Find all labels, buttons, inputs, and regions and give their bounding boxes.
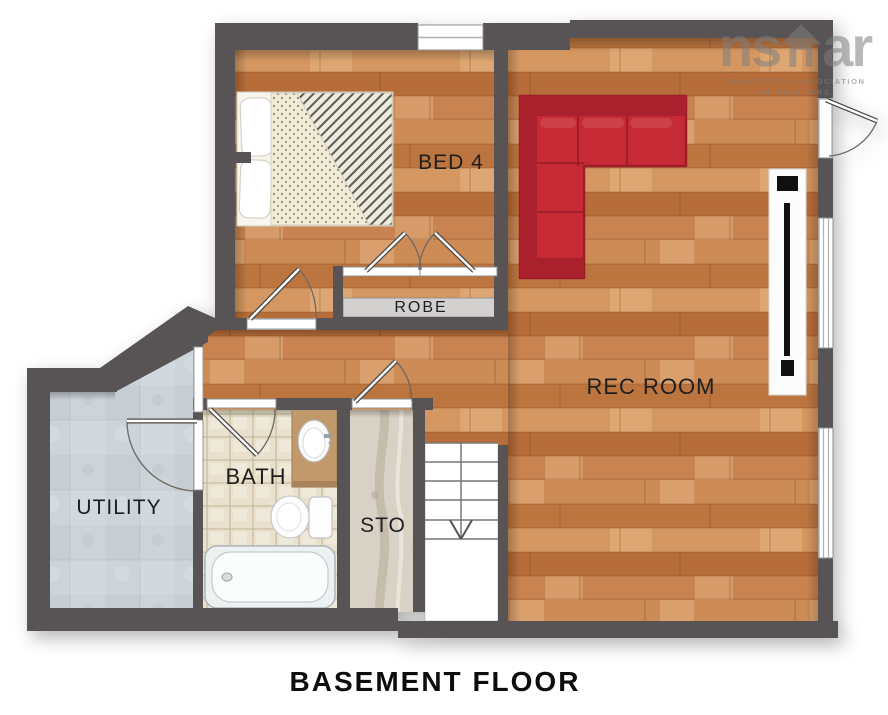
bath-vanity xyxy=(292,407,337,487)
rec-room-window-upper xyxy=(819,218,833,348)
rec-room-window-lower xyxy=(819,428,833,558)
bed xyxy=(237,92,393,226)
av-equipment xyxy=(781,360,794,376)
exterior-door xyxy=(826,100,877,156)
page-title: BASEMENT FLOOR xyxy=(0,666,870,698)
utility-window xyxy=(194,347,203,412)
pillow xyxy=(240,97,273,156)
room-label-sto: STO xyxy=(360,514,406,538)
floorplan-page: BED 4 REC ROOM UTILITY BATH STO ROBE BAS… xyxy=(0,0,888,715)
room-label-bath: BATH xyxy=(225,464,286,490)
tv-unit xyxy=(769,169,806,395)
room-label-robe: ROBE xyxy=(394,299,447,317)
room-label-utility: UTILITY xyxy=(76,496,161,520)
sto-floor xyxy=(350,410,413,612)
pillow xyxy=(239,159,272,218)
bed4-window xyxy=(418,25,483,50)
floorplan-drawing xyxy=(0,0,888,715)
av-equipment xyxy=(777,176,798,191)
toilet xyxy=(271,496,332,538)
tub-drain xyxy=(222,573,232,581)
robe-floor xyxy=(343,276,497,298)
faucet xyxy=(324,434,332,438)
tv-screen xyxy=(784,203,790,356)
bathtub xyxy=(205,546,335,608)
room-label-rec-room: REC ROOM xyxy=(587,374,716,400)
room-label-bed4: BED 4 xyxy=(418,151,484,175)
floorplan-svg xyxy=(0,0,888,715)
